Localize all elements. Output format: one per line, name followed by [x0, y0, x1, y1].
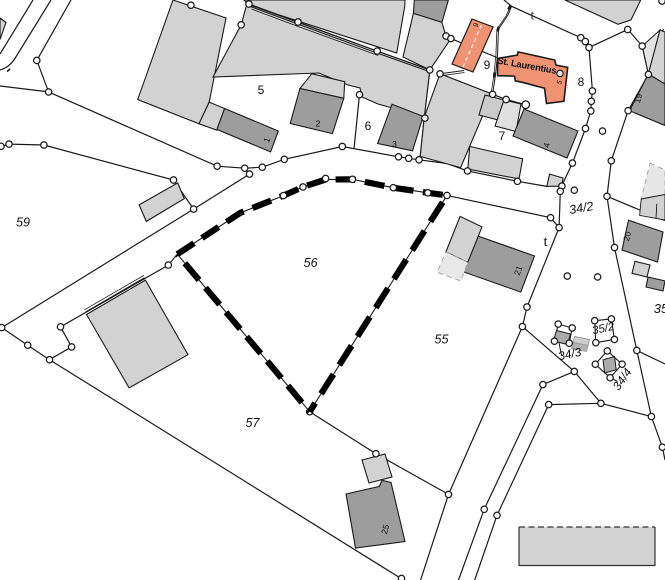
svg-text:55: 55	[435, 333, 449, 347]
svg-text:2: 2	[316, 119, 321, 129]
svg-text:35: 35	[654, 301, 665, 316]
svg-text:59: 59	[16, 216, 30, 230]
svg-text:3: 3	[392, 139, 397, 149]
svg-text:57: 57	[246, 416, 261, 430]
svg-text:7: 7	[499, 129, 506, 143]
svg-text:8: 8	[578, 75, 585, 89]
svg-text:t: t	[531, 9, 535, 24]
svg-text:5: 5	[258, 83, 265, 97]
svg-text:56: 56	[304, 256, 318, 270]
svg-text:6: 6	[365, 119, 372, 133]
svg-text:9: 9	[484, 58, 491, 72]
